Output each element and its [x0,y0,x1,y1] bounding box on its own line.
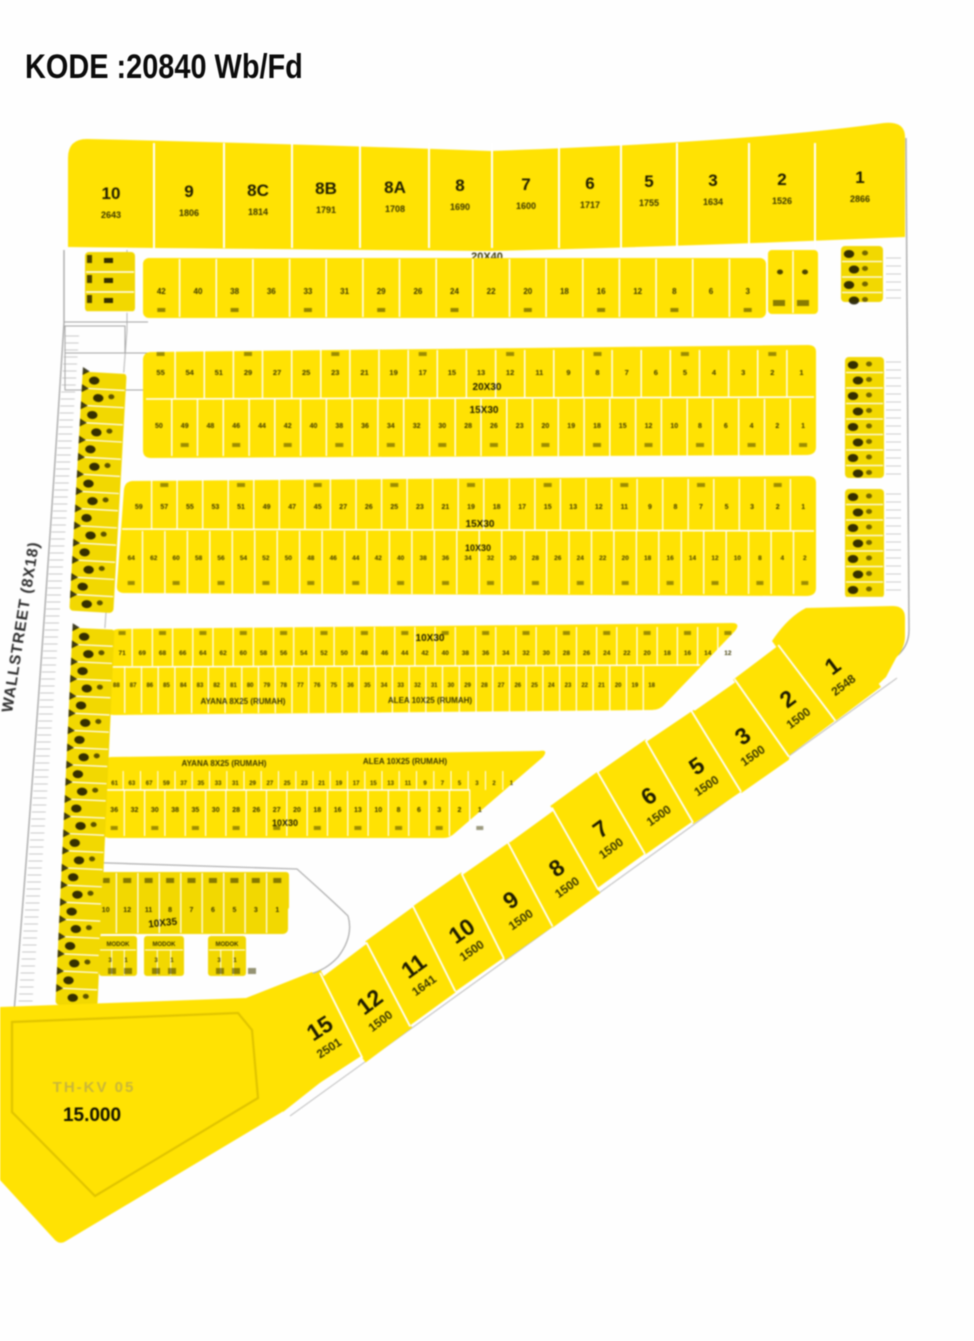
svg-text:11: 11 [535,368,543,377]
svg-text:15: 15 [544,504,552,511]
svg-text:30: 30 [212,807,220,814]
svg-text:6: 6 [724,423,728,430]
svg-text:42: 42 [421,650,429,657]
svg-text:46: 46 [381,650,389,657]
svg-text:23: 23 [416,504,424,511]
svg-text:4: 4 [750,423,754,430]
svg-text:10: 10 [102,907,110,914]
svg-text:27: 27 [267,781,274,787]
svg-text:18: 18 [313,807,321,814]
svg-text:38: 38 [171,807,179,814]
svg-text:MODOK: MODOK [153,942,177,948]
svg-text:10X30: 10X30 [465,543,491,553]
svg-text:57: 57 [160,504,168,511]
svg-text:37: 37 [180,781,187,787]
svg-text:12: 12 [123,907,131,914]
svg-text:6: 6 [211,907,215,914]
svg-text:32: 32 [414,683,421,689]
svg-text:54: 54 [186,368,195,377]
svg-text:27: 27 [339,504,347,511]
svg-text:1690: 1690 [450,202,470,212]
svg-text:21: 21 [318,781,325,787]
svg-text:7: 7 [190,907,194,914]
svg-text:19: 19 [336,781,343,787]
svg-text:13: 13 [387,781,394,787]
svg-text:6: 6 [585,174,594,193]
svg-text:66: 66 [179,650,187,657]
svg-text:21: 21 [598,683,605,689]
svg-text:40: 40 [310,423,318,430]
svg-text:1526: 1526 [772,196,792,206]
svg-text:5: 5 [232,907,236,914]
svg-text:63: 63 [129,781,136,787]
svg-text:1717: 1717 [580,200,600,210]
svg-text:30: 30 [438,423,446,430]
svg-text:11: 11 [405,781,412,787]
svg-text:21: 21 [442,504,450,511]
svg-text:MODOK: MODOK [107,942,131,948]
svg-text:11: 11 [145,907,153,914]
svg-text:71: 71 [118,650,126,657]
svg-text:31: 31 [431,683,438,689]
svg-text:42: 42 [157,287,166,296]
svg-text:47: 47 [288,504,296,511]
svg-text:32: 32 [413,423,421,430]
svg-text:9: 9 [566,368,570,377]
svg-text:2643: 2643 [101,210,121,220]
svg-text:2: 2 [776,504,780,511]
svg-text:1634: 1634 [703,197,723,207]
svg-text:27: 27 [498,683,505,689]
svg-text:1: 1 [855,168,864,187]
svg-text:26: 26 [490,423,498,430]
svg-text:25: 25 [284,781,291,787]
svg-text:12: 12 [633,287,642,296]
svg-text:18: 18 [560,287,569,296]
svg-text:30: 30 [151,807,159,814]
svg-text:56: 56 [217,555,225,562]
svg-text:8: 8 [595,368,599,377]
svg-text:87: 87 [130,683,137,689]
svg-text:12: 12 [724,650,732,657]
svg-text:35: 35 [364,683,371,689]
svg-text:8A: 8A [384,178,406,197]
svg-text:42: 42 [284,423,292,430]
svg-text:8: 8 [168,907,172,914]
svg-text:24: 24 [577,555,585,562]
svg-text:17: 17 [518,504,526,511]
svg-text:15.000: 15.000 [63,1105,121,1126]
svg-text:12: 12 [711,555,719,562]
svg-text:15X30: 15X30 [470,405,499,416]
svg-text:23: 23 [516,423,524,430]
svg-text:19: 19 [632,683,639,689]
svg-text:20: 20 [622,555,630,562]
svg-text:1708: 1708 [385,204,405,214]
svg-text:3: 3 [437,807,441,814]
svg-text:52: 52 [262,555,270,562]
svg-text:54: 54 [300,650,308,657]
svg-text:AYANA 8X25 (RUMAH): AYANA 8X25 (RUMAH) [182,759,267,768]
svg-text:AYANA 8X25 (RUMAH): AYANA 8X25 (RUMAH) [201,697,286,706]
svg-text:34: 34 [464,555,472,562]
svg-text:25: 25 [302,368,310,377]
svg-text:36: 36 [482,650,490,657]
svg-text:35: 35 [198,781,205,787]
svg-text:38: 38 [462,650,470,657]
svg-text:1755: 1755 [639,198,659,208]
svg-text:22: 22 [487,287,496,296]
svg-text:18: 18 [648,683,655,689]
svg-text:13: 13 [477,368,485,377]
svg-text:18: 18 [593,423,601,430]
svg-text:36: 36 [361,423,369,430]
svg-text:1: 1 [799,368,803,377]
svg-text:46: 46 [232,423,240,430]
svg-text:18: 18 [493,504,501,511]
svg-text:83: 83 [197,683,204,689]
svg-text:3: 3 [741,368,745,377]
svg-text:30: 30 [448,683,455,689]
svg-text:1600: 1600 [516,201,536,211]
svg-text:23: 23 [331,368,339,377]
svg-text:8C: 8C [247,181,269,200]
svg-text:8: 8 [672,287,677,296]
svg-text:20: 20 [643,650,651,657]
svg-text:32: 32 [487,555,495,562]
svg-text:34: 34 [387,423,395,430]
svg-text:36: 36 [347,683,354,689]
svg-text:6: 6 [417,807,421,814]
svg-text:15: 15 [448,368,456,377]
svg-text:62: 62 [150,555,158,562]
svg-text:81: 81 [230,683,237,689]
svg-text:20: 20 [523,287,532,296]
svg-text:33: 33 [397,683,404,689]
svg-text:8B: 8B [315,179,337,198]
svg-text:14: 14 [689,555,697,562]
svg-text:WALLSTREET (8X18): WALLSTREET (8X18) [0,540,43,713]
svg-text:2866: 2866 [850,194,870,204]
svg-text:25: 25 [531,683,538,689]
svg-text:1: 1 [801,504,805,511]
svg-text:21: 21 [360,368,368,377]
svg-text:18: 18 [664,650,672,657]
svg-text:25: 25 [390,504,398,511]
svg-text:78: 78 [280,683,287,689]
svg-text:17: 17 [353,781,360,787]
svg-text:55: 55 [156,368,164,377]
svg-text:20: 20 [542,423,550,430]
svg-text:29: 29 [244,368,252,377]
svg-text:44: 44 [401,650,409,657]
svg-text:69: 69 [139,650,147,657]
svg-text:67: 67 [146,781,153,787]
svg-text:44: 44 [352,555,360,562]
svg-text:12: 12 [506,368,514,377]
svg-text:16: 16 [334,807,342,814]
svg-text:9: 9 [648,504,652,511]
svg-text:4: 4 [780,555,784,562]
svg-text:1806: 1806 [179,208,199,218]
svg-text:30: 30 [543,650,551,657]
svg-text:8: 8 [397,807,401,814]
svg-text:3: 3 [750,504,754,511]
svg-text:20: 20 [293,807,301,814]
svg-text:7: 7 [625,368,629,377]
svg-text:88: 88 [113,683,120,689]
svg-text:51: 51 [237,504,245,511]
svg-text:ALEA 10X25 (RUMAH): ALEA 10X25 (RUMAH) [363,757,447,766]
svg-text:85: 85 [163,683,170,689]
svg-text:40: 40 [442,650,450,657]
svg-text:35: 35 [192,807,200,814]
svg-text:17: 17 [419,368,427,377]
svg-text:33: 33 [303,287,312,296]
svg-text:76: 76 [314,683,321,689]
svg-text:38: 38 [335,423,343,430]
svg-text:40: 40 [397,555,405,562]
svg-text:58: 58 [260,650,268,657]
svg-text:16: 16 [666,555,674,562]
svg-text:5: 5 [725,504,729,511]
svg-text:6: 6 [709,287,714,296]
svg-text:49: 49 [181,423,189,430]
svg-text:8: 8 [455,176,464,195]
svg-text:40: 40 [194,287,203,296]
svg-text:48: 48 [307,555,315,562]
svg-text:34: 34 [381,683,388,689]
svg-text:19: 19 [389,368,397,377]
svg-text:51: 51 [215,368,223,377]
svg-text:29: 29 [464,683,471,689]
svg-text:1791: 1791 [316,205,336,215]
svg-text:82: 82 [213,683,220,689]
svg-text:8: 8 [673,504,677,511]
svg-text:5: 5 [683,368,687,377]
svg-text:59: 59 [163,781,170,787]
svg-text:16: 16 [597,287,606,296]
svg-text:32: 32 [522,650,530,657]
svg-text:26: 26 [514,683,521,689]
svg-text:54: 54 [240,555,248,562]
svg-text:68: 68 [159,650,167,657]
svg-text:2: 2 [803,555,807,562]
svg-text:26: 26 [253,807,261,814]
svg-text:15: 15 [370,781,377,787]
svg-text:60: 60 [172,555,180,562]
svg-text:2: 2 [777,170,786,189]
svg-text:64: 64 [199,650,207,657]
svg-text:28: 28 [232,807,240,814]
svg-text:10: 10 [670,423,678,430]
svg-text:48: 48 [361,650,369,657]
svg-text:24: 24 [603,650,611,657]
svg-text:31: 31 [340,287,349,296]
svg-text:80: 80 [247,683,254,689]
svg-text:77: 77 [297,683,304,689]
svg-text:15: 15 [619,423,627,430]
svg-text:ALEA 10X25 (RUMAH): ALEA 10X25 (RUMAH) [388,696,472,705]
svg-text:15X30: 15X30 [466,519,495,530]
svg-text:36: 36 [267,287,276,296]
svg-text:26: 26 [554,555,562,562]
svg-text:62: 62 [219,650,227,657]
svg-text:32: 32 [131,807,139,814]
svg-text:33: 33 [215,781,222,787]
svg-text:48: 48 [207,423,215,430]
svg-text:27: 27 [273,807,281,814]
svg-text:28: 28 [464,423,472,430]
svg-text:64: 64 [128,555,136,562]
svg-text:10: 10 [374,807,382,814]
svg-text:42: 42 [375,555,383,562]
svg-text:10: 10 [734,555,742,562]
svg-text:27: 27 [273,368,281,377]
svg-text:59: 59 [135,504,143,511]
svg-text:TH-KV 05: TH-KV 05 [53,1079,136,1096]
svg-text:50: 50 [285,555,293,562]
svg-text:23: 23 [301,781,308,787]
svg-text:46: 46 [330,555,338,562]
svg-text:11: 11 [621,504,629,511]
svg-text:24: 24 [548,683,555,689]
svg-text:55: 55 [186,504,194,511]
svg-text:31: 31 [232,781,239,787]
svg-text:22: 22 [599,555,607,562]
svg-text:50: 50 [341,650,349,657]
svg-text:28: 28 [481,683,488,689]
svg-text:2: 2 [775,423,779,430]
svg-text:12: 12 [645,423,653,430]
svg-text:3: 3 [254,907,258,914]
svg-text:5: 5 [644,172,653,191]
svg-text:28: 28 [532,555,540,562]
svg-text:29: 29 [249,781,256,787]
svg-text:1: 1 [478,807,482,814]
svg-text:8: 8 [758,555,762,562]
svg-text:18: 18 [644,555,652,562]
svg-text:19: 19 [567,423,575,430]
svg-text:7: 7 [699,504,703,511]
svg-text:86: 86 [146,683,153,689]
svg-text:36: 36 [110,807,118,814]
svg-text:34: 34 [502,650,510,657]
svg-text:6: 6 [654,368,658,377]
svg-text:13: 13 [354,807,362,814]
svg-text:60: 60 [240,650,248,657]
svg-text:14: 14 [704,650,712,657]
svg-text:38: 38 [419,555,427,562]
svg-text:3: 3 [745,287,750,296]
svg-text:2: 2 [770,368,774,377]
svg-text:24: 24 [450,287,459,296]
svg-text:75: 75 [330,683,337,689]
svg-text:61: 61 [111,781,118,787]
svg-text:50: 50 [155,423,163,430]
svg-text:10X30: 10X30 [416,633,445,644]
svg-text:49: 49 [263,504,271,511]
svg-text:52: 52 [320,650,328,657]
svg-text:22: 22 [623,650,631,657]
svg-text:36: 36 [442,555,450,562]
svg-text:7: 7 [521,175,530,194]
svg-text:26: 26 [583,650,591,657]
svg-text:9: 9 [184,182,193,201]
svg-text:58: 58 [195,555,203,562]
svg-text:10X30: 10X30 [272,818,298,828]
svg-text:16: 16 [684,650,692,657]
svg-text:20: 20 [615,683,622,689]
svg-text:12: 12 [595,504,603,511]
svg-text:2: 2 [458,807,462,814]
svg-text:28: 28 [563,650,571,657]
svg-text:56: 56 [280,650,288,657]
svg-text:1: 1 [801,423,805,430]
svg-text:79: 79 [264,683,271,689]
svg-text:3: 3 [708,171,717,190]
svg-text:20X30: 20X30 [473,382,502,393]
svg-text:26: 26 [413,287,422,296]
svg-text:10: 10 [102,184,121,203]
svg-text:26: 26 [365,504,373,511]
svg-text:1814: 1814 [248,207,268,217]
svg-text:45: 45 [314,504,322,511]
svg-text:22: 22 [581,683,588,689]
svg-text:13: 13 [569,504,577,511]
svg-text:23: 23 [565,683,572,689]
svg-text:MODOK: MODOK [216,942,240,948]
svg-text:30: 30 [509,555,517,562]
svg-text:53: 53 [212,504,220,511]
svg-text:29: 29 [377,287,386,296]
svg-text:38: 38 [230,287,239,296]
svg-text:1: 1 [275,907,279,914]
svg-text:8: 8 [698,423,702,430]
svg-text:84: 84 [180,683,187,689]
svg-text:44: 44 [258,423,266,430]
svg-text:19: 19 [467,504,475,511]
